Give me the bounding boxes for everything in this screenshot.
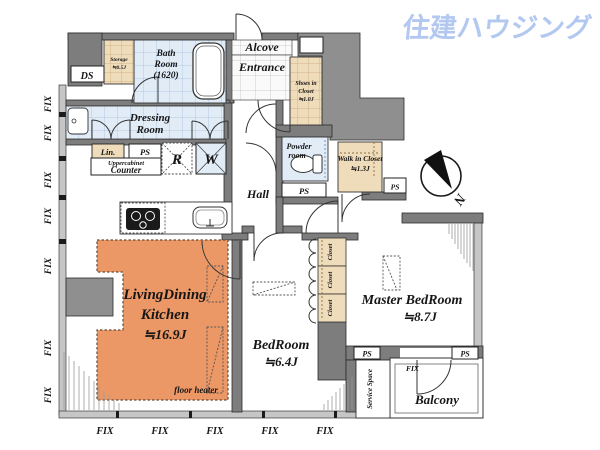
fix-left-2: FIX bbox=[44, 124, 54, 142]
ps-label-powder: PS bbox=[299, 186, 309, 196]
ps-label-bottom-right: PS bbox=[460, 350, 470, 359]
floorplan-drawing: N Alcove Entrance Bath Room (1620) Stora… bbox=[0, 0, 600, 450]
lin-label: Lin. bbox=[100, 147, 115, 157]
fix-bottom-1: FIX bbox=[95, 426, 114, 437]
dressing-label-2: Room bbox=[136, 124, 164, 136]
ldk-label-1: LivingDining bbox=[122, 287, 207, 303]
fix-bottom-4: FIX bbox=[260, 426, 279, 437]
compass: N bbox=[421, 150, 468, 208]
fix-left-4: FIX bbox=[44, 207, 54, 225]
company-logo: 住建ハウジング bbox=[401, 6, 594, 45]
fix-bottom-2: FIX bbox=[150, 426, 169, 437]
refrigerator-label: R bbox=[171, 152, 182, 168]
ds-label: DS bbox=[80, 71, 94, 82]
ps-label-bottom-left: PS bbox=[362, 350, 372, 359]
floorplan-page: 住建ハウジング bbox=[0, 0, 600, 450]
balcony-label: Balcony bbox=[414, 392, 459, 407]
fix-left-7: FIX bbox=[44, 386, 54, 404]
powder-label-1: Powder bbox=[287, 142, 313, 151]
entrance-label: Entrance bbox=[238, 60, 286, 74]
ldk-label-2: Kitchen bbox=[140, 307, 189, 323]
ps-label-walkin: PS bbox=[391, 183, 400, 192]
service-space-label: Service Space bbox=[366, 369, 374, 409]
closet-label-1: Closet bbox=[327, 244, 334, 261]
counter-label: Counter bbox=[111, 165, 142, 175]
alcove-label: Alcove bbox=[244, 40, 279, 54]
floor-heater-label: floor heater bbox=[174, 385, 218, 395]
master-bedroom-label: Master BedRoom bbox=[361, 293, 463, 308]
dressing-label-1: Dressing bbox=[129, 112, 171, 124]
storage-label-1: Storage bbox=[110, 57, 128, 63]
walkin-label-2: ≒1.3J bbox=[350, 164, 370, 173]
closet-label-3: Closet bbox=[327, 300, 334, 317]
bathtub bbox=[193, 43, 224, 99]
bedroom-size-label: ≒6.4J bbox=[264, 354, 298, 369]
bedroom-label: BedRoom bbox=[252, 338, 310, 353]
bath-label-3: (1620) bbox=[153, 70, 178, 81]
fix-left-5: FIX bbox=[44, 257, 54, 275]
closet-label-2: Closet bbox=[327, 272, 334, 289]
walkin-label-1: Walk in Closet bbox=[338, 154, 384, 163]
shoes-label-3: ≒1.0J bbox=[298, 97, 315, 103]
washer-label: W bbox=[204, 152, 219, 168]
bath-label-1: Bath bbox=[155, 49, 175, 59]
bifold-closet-doors bbox=[309, 239, 316, 323]
stove-icon bbox=[126, 208, 160, 230]
fix-left-3: FIX bbox=[44, 171, 54, 189]
shoes-label-1: Shoes in bbox=[295, 81, 317, 87]
ldk-size-label: ≒16.9J bbox=[143, 328, 187, 343]
shoes-label-2: Closet bbox=[298, 89, 314, 95]
powder-label-2: room bbox=[288, 151, 305, 160]
bath-label-2: Room bbox=[153, 60, 177, 70]
hall-label: Hall bbox=[246, 187, 270, 201]
fix-bottom-3: FIX bbox=[205, 426, 224, 437]
ps-label-kitchen: PS bbox=[140, 147, 150, 157]
storage-label-2: ≒0.5J bbox=[112, 65, 126, 71]
washbasin bbox=[68, 108, 88, 134]
fix-left-1: FIX bbox=[44, 95, 54, 113]
fix-bottom-5: FIX bbox=[315, 426, 334, 437]
master-bedroom-size-label: ≒8.7J bbox=[403, 309, 437, 324]
fix-left-6: FIX bbox=[44, 339, 54, 357]
fix-label-balcony: FIX bbox=[406, 364, 420, 373]
